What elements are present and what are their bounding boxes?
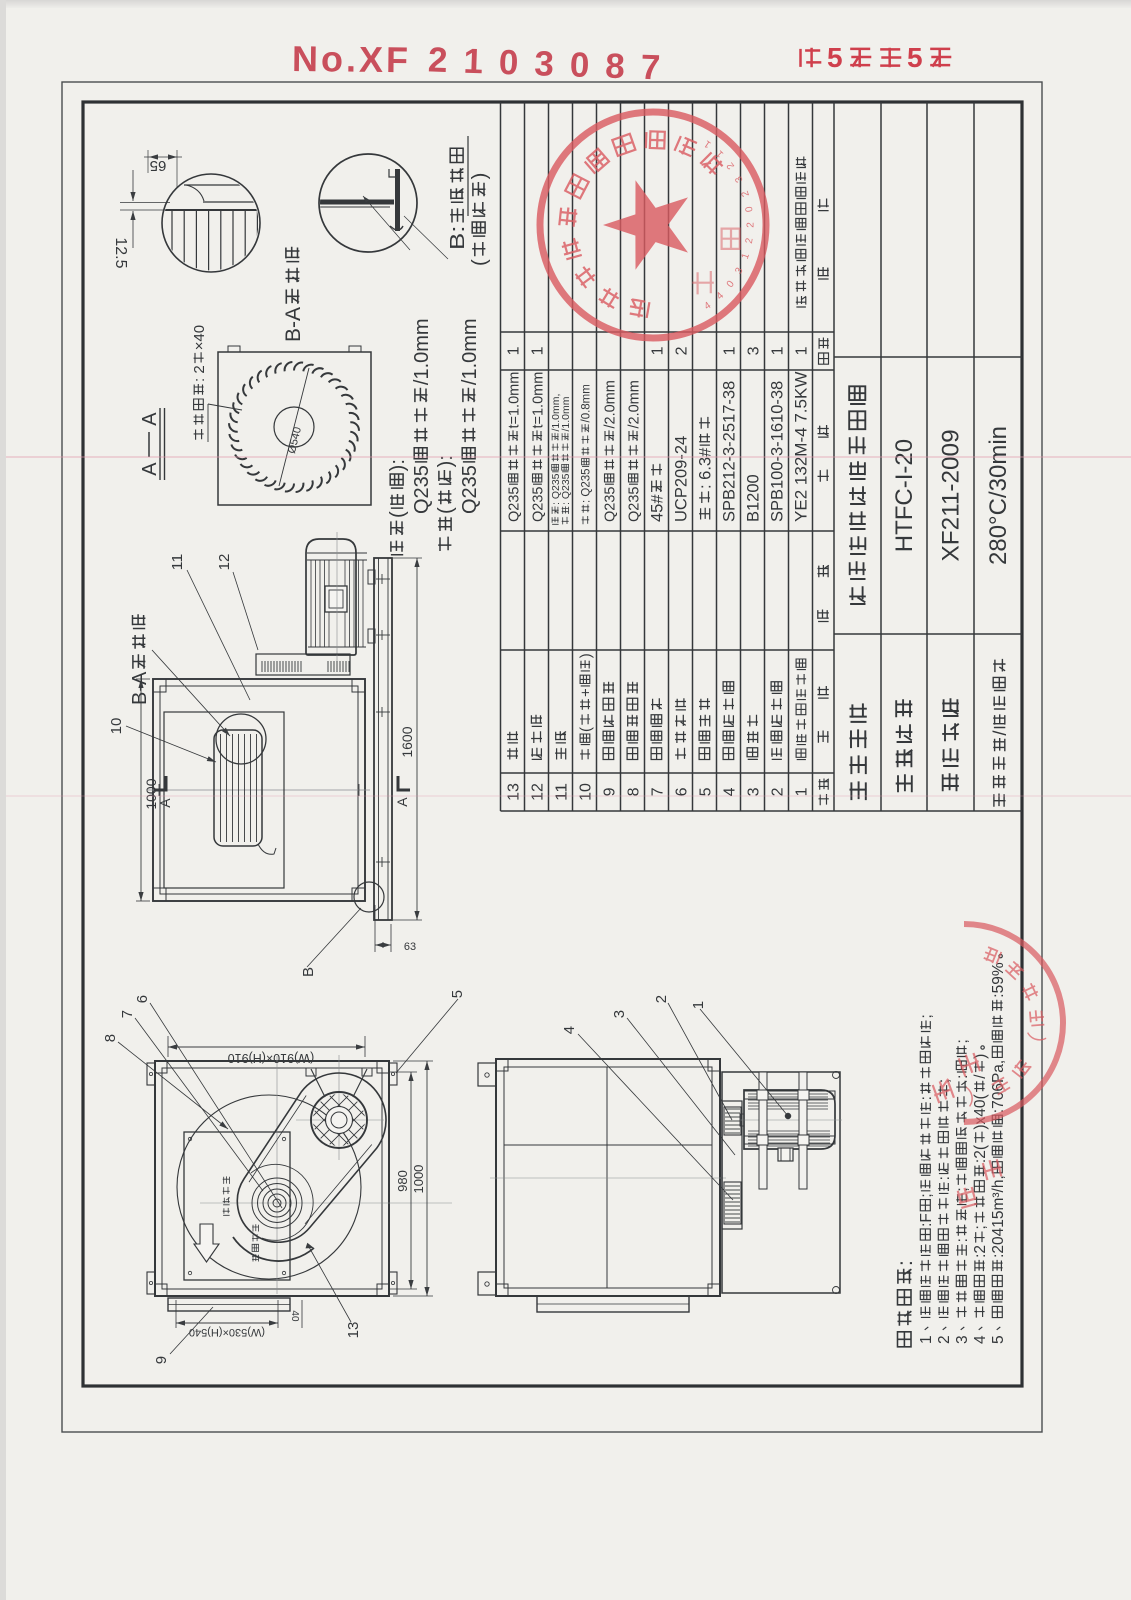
svg-text:(W)530×(H)540: (W)530×(H)540 [189,1326,265,1338]
svg-text:/1.0mm: /1.0mm [560,396,572,431]
svg-text::: : [918,1096,935,1100]
svg-text::: : [954,1238,971,1242]
svg-text:3: 3 [611,1010,628,1018]
svg-text:8: 8 [102,1034,119,1042]
svg-text:1000: 1000 [411,1165,426,1194]
svg-text:: 6.3#: : 6.3# [697,447,715,489]
svg-text:(: ( [469,259,491,266]
svg-text:(: ( [578,727,595,732]
svg-text:5: 5 [990,1335,1007,1344]
svg-text:: 2: : 2 [191,365,208,382]
svg-text:980: 980 [395,1170,410,1192]
svg-text:Ø540: Ø540 [286,426,304,455]
svg-text:;: ; [954,1187,971,1191]
svg-text::: : [954,1075,971,1079]
svg-text:1: 1 [702,137,713,149]
svg-text:10: 10 [108,718,125,735]
svg-text:13: 13 [506,783,523,801]
svg-text:1: 1 [918,1335,935,1344]
svg-text:;: ; [954,1039,971,1043]
svg-text:7: 7 [119,1010,136,1018]
svg-text:2: 2 [740,189,752,198]
svg-text::: : [936,1176,953,1180]
svg-text:B:: B: [447,226,469,251]
svg-text:1: 1 [650,346,667,355]
svg-text:2: 2 [653,995,670,1003]
svg-text:/2.0mm: /2.0mm [627,380,643,428]
svg-text:/: / [989,730,1010,736]
svg-text:45#: 45# [649,494,667,522]
svg-text:B-A: B-A [129,671,151,705]
svg-text:2: 2 [674,346,691,355]
svg-text:1: 1 [530,346,547,355]
svg-text:6: 6 [134,995,151,1003]
svg-text:): ) [578,653,595,658]
svg-text:/: / [972,1074,989,1079]
svg-text:Q235: Q235 [531,487,547,523]
svg-text:5: 5 [907,42,923,73]
svg-text:63: 63 [404,941,416,953]
svg-text:SPB100-3-1610-38: SPB100-3-1610-38 [769,381,787,522]
svg-text:B: B [300,967,317,977]
svg-text:Q235: Q235 [603,487,619,523]
svg-text:(: ( [435,507,457,514]
svg-text:2: 2 [725,160,737,171]
svg-text:A: A [394,797,410,807]
svg-text:B-A: B-A [282,307,305,342]
svg-text:A: A [157,798,173,808]
svg-text:Q235: Q235 [507,487,523,523]
svg-text:4: 4 [972,1335,989,1344]
svg-text:1600: 1600 [399,726,415,757]
svg-text:4: 4 [702,300,713,312]
svg-text::: : [894,1260,917,1266]
svg-text::F: :F [918,1213,935,1227]
svg-text:YE2 132M-4 7.5KW: YE2 132M-4 7.5KW [793,371,811,522]
svg-text:):: ): [387,459,409,471]
svg-text:1: 1 [740,252,752,261]
svg-text:A: A [139,462,161,476]
svg-text::2(: :2( [972,1144,989,1163]
svg-text:5: 5 [449,990,466,998]
svg-text:UCP209-24: UCP209-24 [673,436,691,522]
svg-text:1: 1 [722,346,739,355]
svg-text::2: :2 [972,1245,989,1258]
svg-text:XF211-2009: XF211-2009 [938,429,965,561]
svg-text::20415m³/h,: :20415m³/h, [990,1175,1007,1258]
svg-text:9: 9 [153,1356,170,1364]
svg-text:12.5: 12.5 [112,237,129,268]
svg-text:): ) [469,173,491,180]
svg-text:5: 5 [827,42,843,73]
svg-text:: Q235: : Q235 [560,473,572,505]
svg-text:10: 10 [578,783,595,801]
svg-text:/1.0mm: /1.0mm [411,318,433,385]
svg-text:1: 1 [770,346,787,355]
svg-text:: Q235: : Q235 [581,469,593,504]
svg-text:×40: ×40 [191,325,208,350]
svg-text:）: ） [965,1084,990,1110]
svg-text:/2.0mm: /2.0mm [603,380,619,428]
svg-text:3: 3 [746,346,763,355]
svg-text:280°C/30min: 280°C/30min [985,426,1012,565]
svg-text:3: 3 [954,1335,971,1344]
svg-text:;: ; [918,1193,935,1197]
svg-text:13: 13 [345,1322,362,1339]
svg-text:0: 0 [725,279,737,290]
svg-text:2: 2 [746,222,757,228]
svg-text:12: 12 [530,783,547,801]
svg-text:(: ( [387,511,409,518]
svg-text:3: 3 [733,266,746,276]
svg-text:/1.0mm: /1.0mm [459,318,481,385]
svg-text:65: 65 [150,157,167,174]
svg-text:(W)910×(H)910: (W)910×(H)910 [228,1051,315,1065]
svg-text:1: 1 [506,346,523,355]
svg-text:11: 11 [554,783,571,801]
svg-text:0: 0 [744,205,756,213]
svg-text:+: + [578,688,595,697]
svg-text:;: ; [972,1225,989,1229]
svg-text:3: 3 [733,174,746,184]
svg-text:/0.8mm: /0.8mm [581,384,593,422]
svg-text:40: 40 [289,1310,300,1322]
svg-text:1: 1 [690,1001,707,1009]
svg-text:12: 12 [216,554,233,571]
svg-text:t=1.0mm: t=1.0mm [507,372,523,429]
svg-text:4: 4 [561,1026,578,1034]
svg-text:2: 2 [744,237,756,245]
svg-text:Q235: Q235 [627,487,643,523]
svg-text:A: A [139,412,161,426]
svg-text:SPB212-3-2517-38: SPB212-3-2517-38 [721,381,739,522]
svg-text:B1200: B1200 [745,474,763,522]
svg-text::59%: :59% [990,962,1007,998]
svg-text:;: ; [918,1014,935,1018]
svg-text:Q235: Q235 [459,465,481,514]
svg-text:11: 11 [169,554,186,571]
svg-text:（: （ [1022,1031,1050,1058]
svg-text:1: 1 [794,346,811,355]
svg-text:t=1.0mm: t=1.0mm [531,372,547,429]
svg-text:Q235: Q235 [411,465,433,514]
svg-text:2: 2 [936,1335,953,1344]
